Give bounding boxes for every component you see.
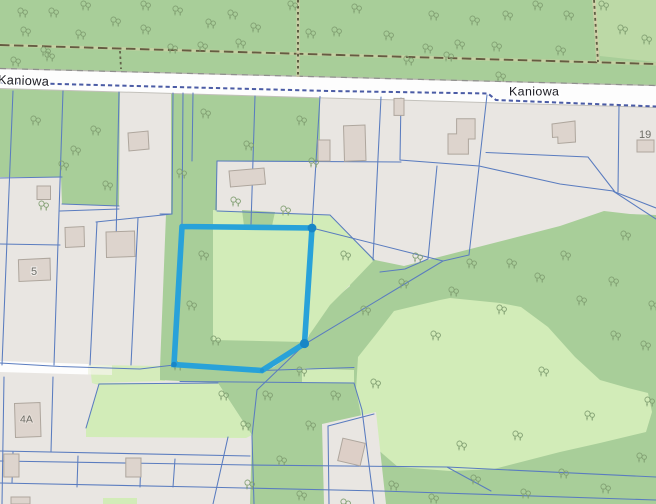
svg-text:Kaniowa: Kaniowa: [509, 85, 559, 99]
svg-text:Kaniowa: Kaniowa: [0, 72, 50, 89]
svg-text:19: 19: [639, 129, 651, 141]
svg-text:5: 5: [31, 266, 37, 278]
svg-text:4A: 4A: [20, 414, 33, 426]
